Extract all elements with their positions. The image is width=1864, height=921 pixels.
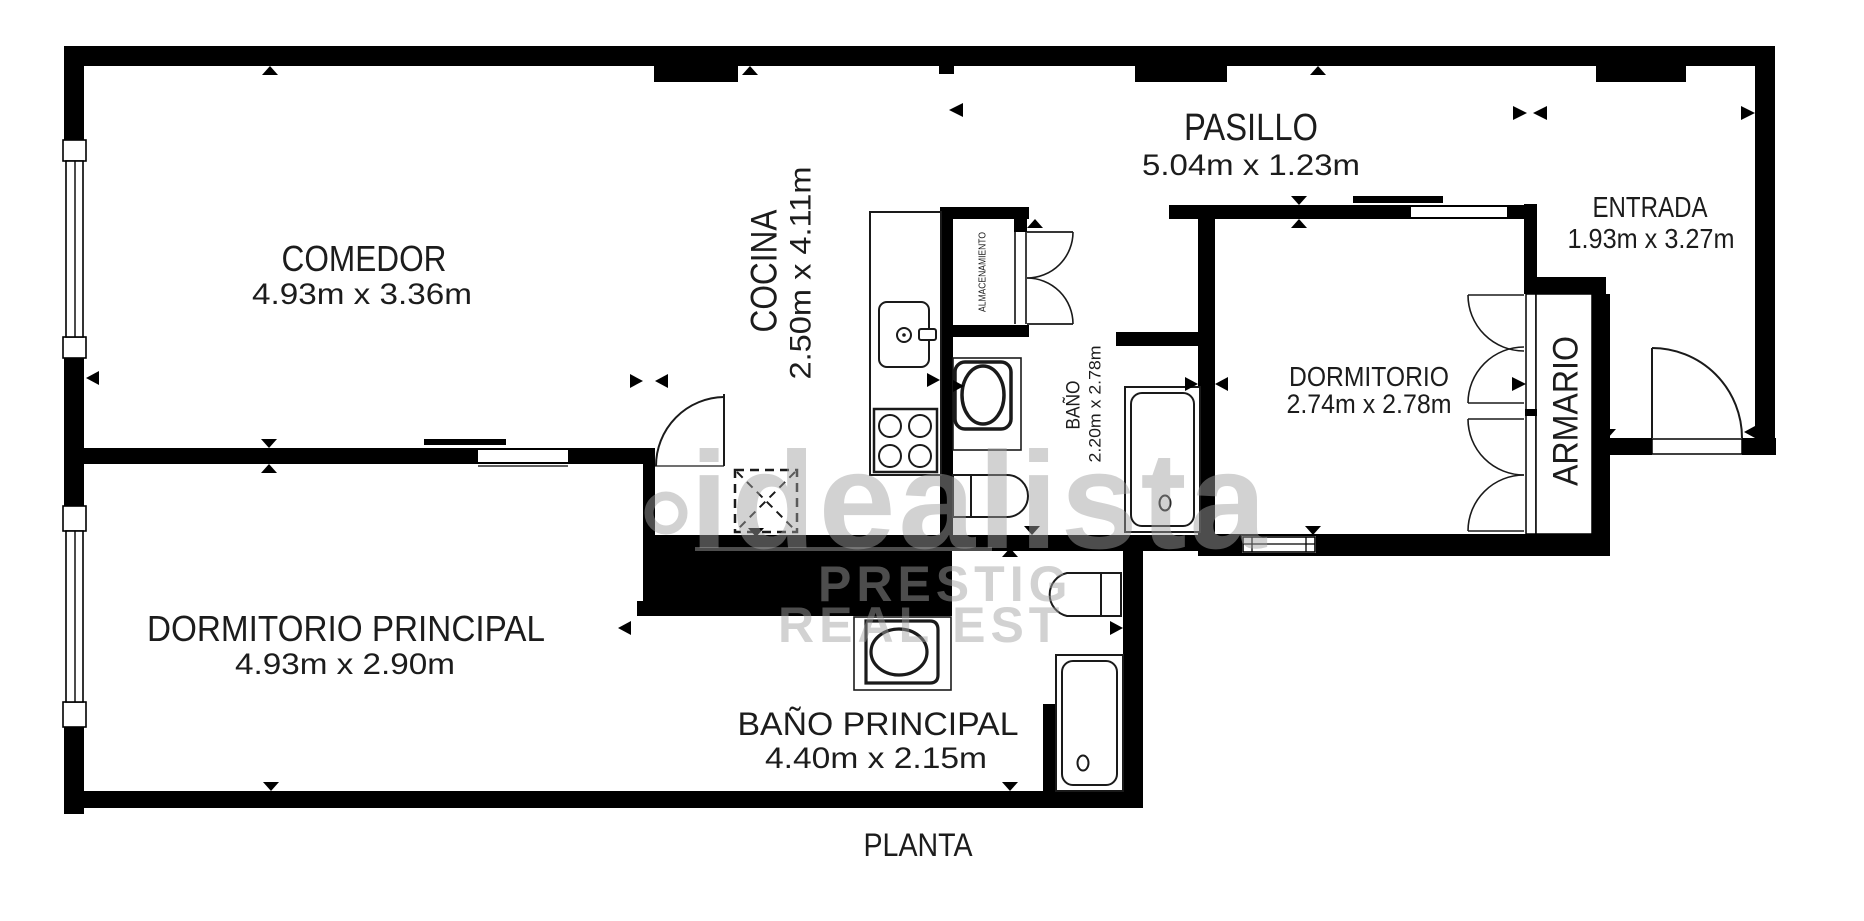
svg-text:ARMARIO: ARMARIO bbox=[1547, 336, 1586, 486]
svg-text:REAL EST: REAL EST bbox=[778, 597, 1064, 653]
svg-text:COCINA: COCINA bbox=[744, 209, 785, 332]
svg-text:DORMITORIO: DORMITORIO bbox=[1289, 361, 1449, 392]
svg-text:PLANTA: PLANTA bbox=[864, 827, 974, 863]
svg-text:4.40m x 2.15m: 4.40m x 2.15m bbox=[765, 742, 987, 775]
svg-text:BAÑO PRINCIPAL: BAÑO PRINCIPAL bbox=[738, 706, 1019, 742]
svg-text:4.93m x 2.90m: 4.93m x 2.90m bbox=[235, 648, 455, 681]
svg-text:ENTRADA: ENTRADA bbox=[1593, 192, 1709, 224]
svg-text:2.74m x 2.78m: 2.74m x 2.78m bbox=[1287, 389, 1452, 419]
svg-text:COMEDOR: COMEDOR bbox=[282, 238, 447, 279]
svg-text:DORMITORIO PRINCIPAL: DORMITORIO PRINCIPAL bbox=[147, 608, 545, 649]
svg-text:2.50m x 4.11m: 2.50m x 4.11m bbox=[785, 167, 818, 380]
svg-text:PASILLO: PASILLO bbox=[1184, 107, 1318, 149]
svg-text:idealista: idealista bbox=[690, 424, 1269, 578]
svg-text:5.04m x 1.23m: 5.04m x 1.23m bbox=[1142, 149, 1360, 182]
svg-text:1.93m x 3.27m: 1.93m x 3.27m bbox=[1568, 223, 1735, 254]
svg-text:ALMACENAMIENTO: ALMACENAMIENTO bbox=[978, 232, 989, 312]
svg-text:4.93m x 3.36m: 4.93m x 3.36m bbox=[252, 278, 472, 311]
svg-text:BAÑO: BAÑO bbox=[1063, 381, 1085, 430]
